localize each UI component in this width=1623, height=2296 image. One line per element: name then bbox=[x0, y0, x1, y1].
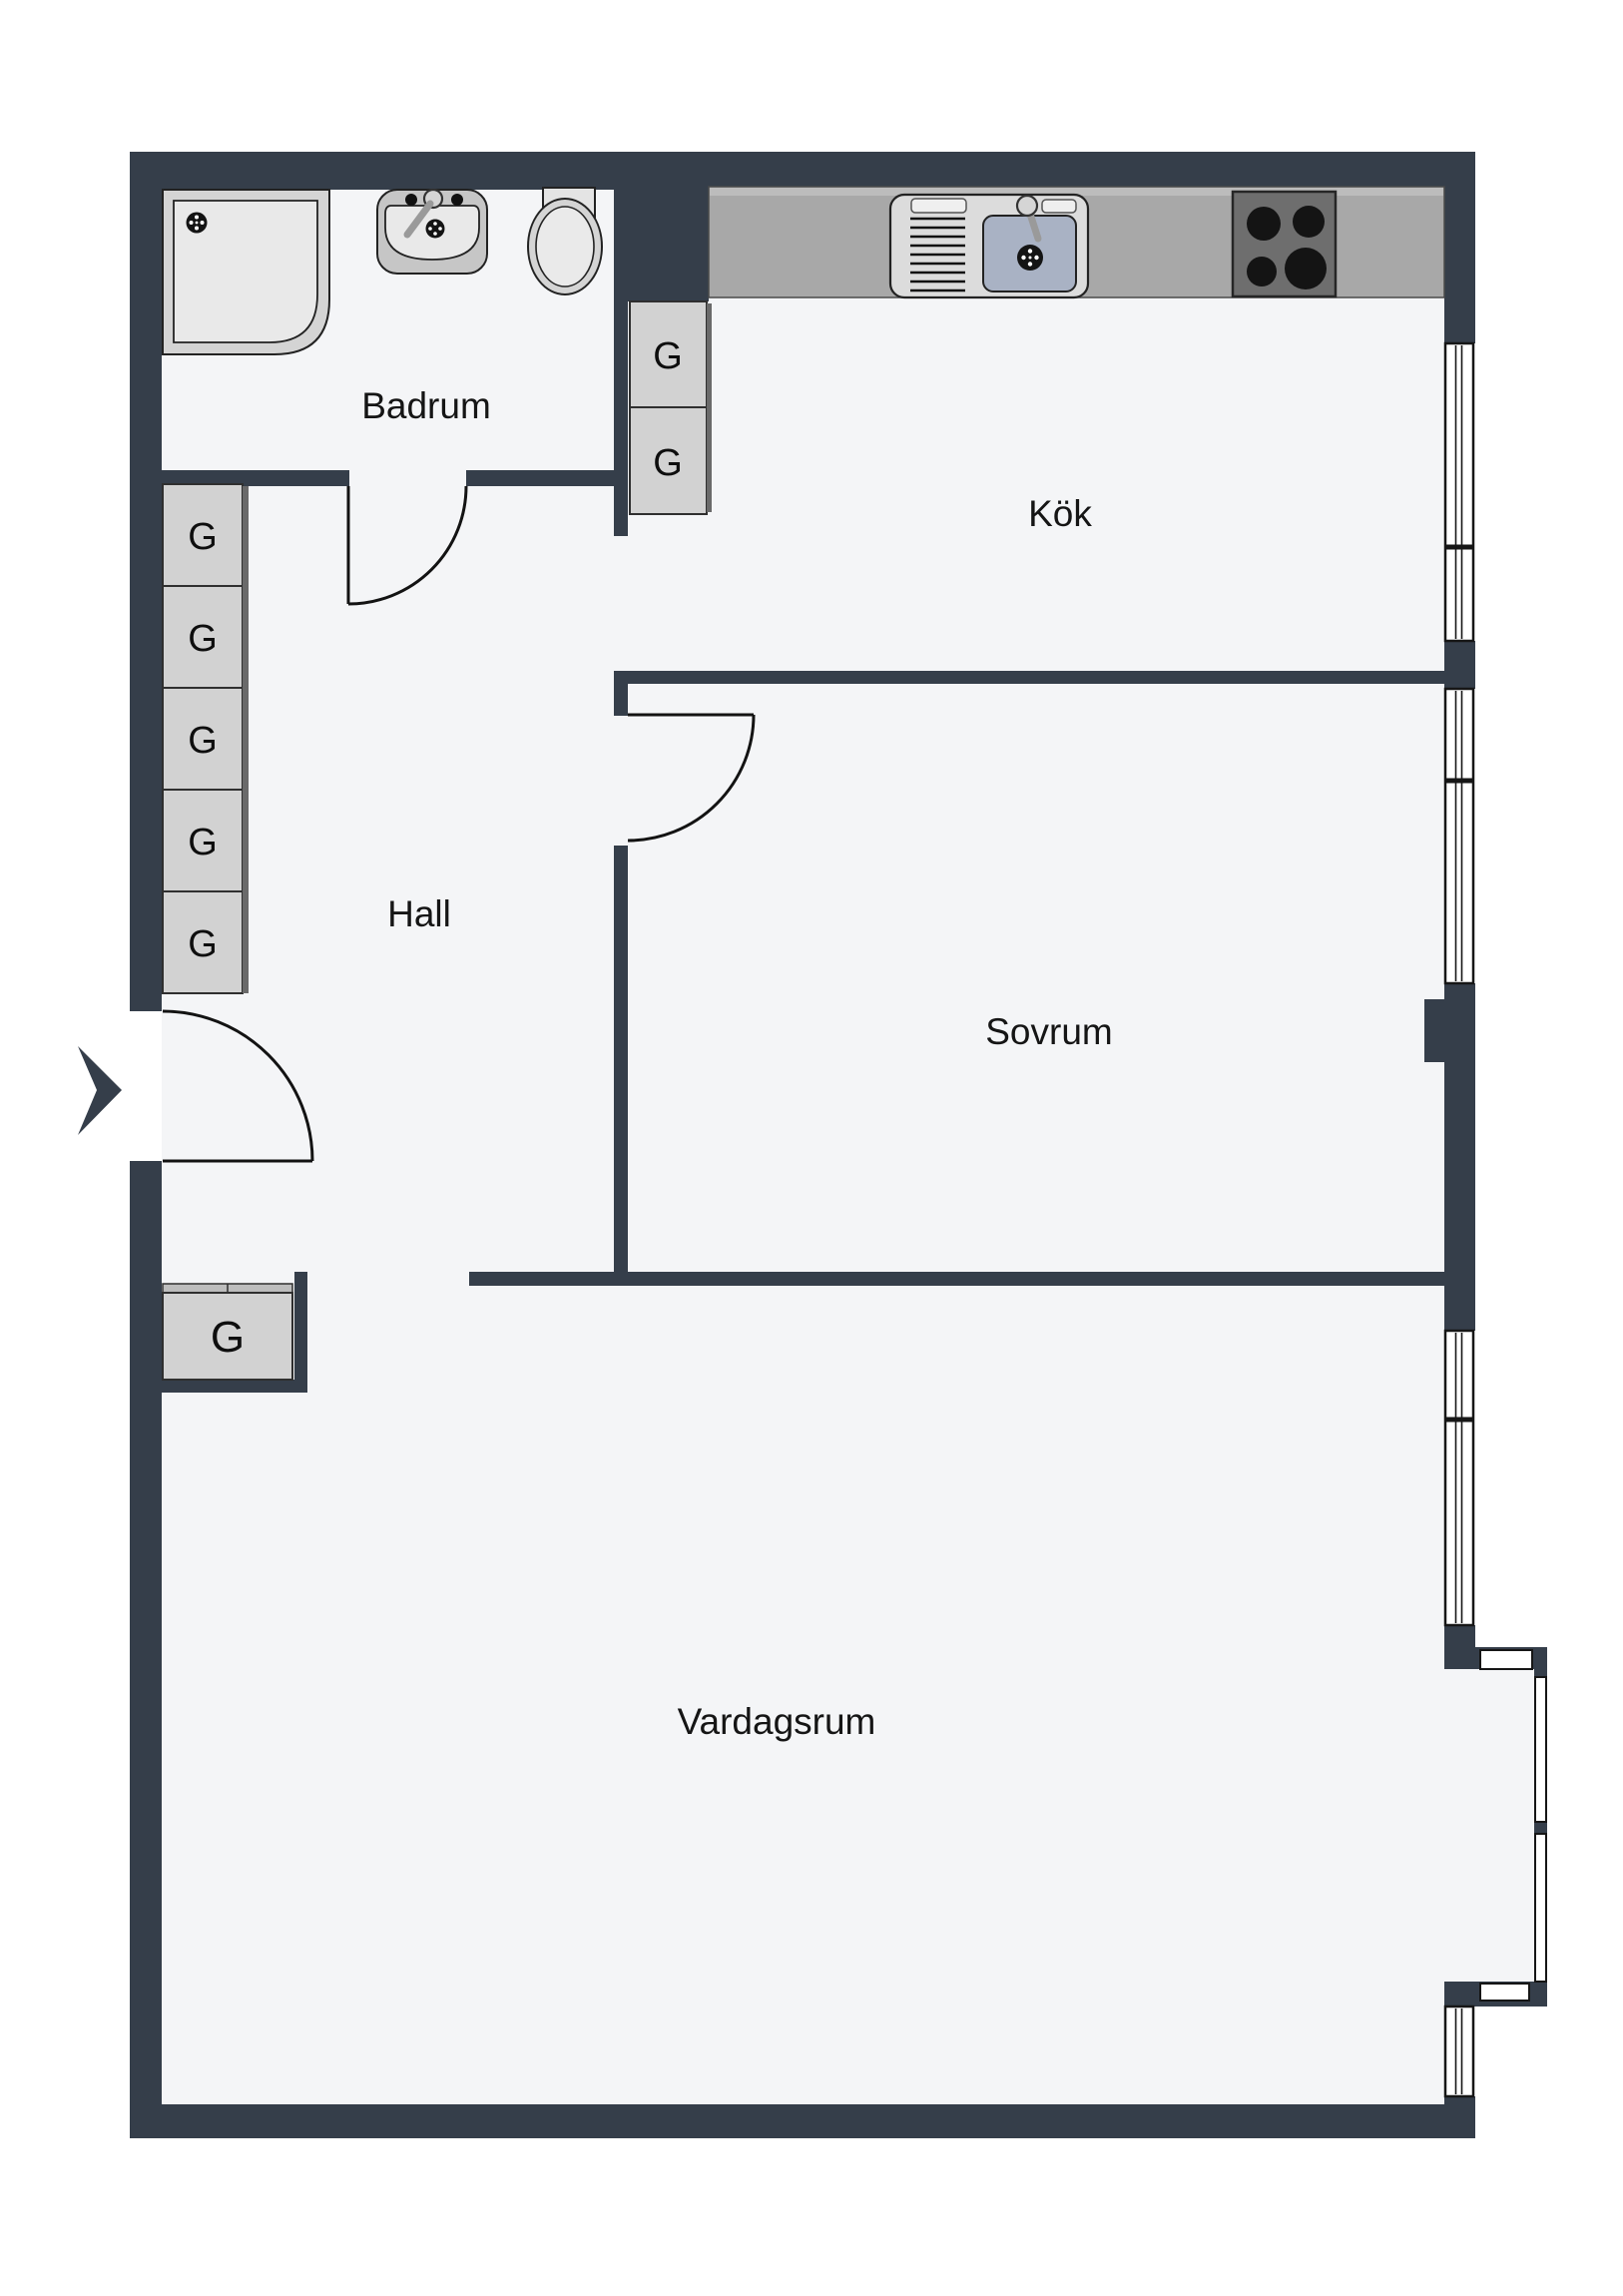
wardrobe-label: G bbox=[188, 618, 218, 660]
wall-right-seg3 bbox=[1444, 983, 1475, 1331]
wall-sovrum-top bbox=[614, 671, 1444, 684]
wall-kitchen-block bbox=[628, 190, 709, 301]
wall-badrum-bottom-right bbox=[466, 470, 628, 486]
bay-window-floor bbox=[1444, 1669, 1534, 1982]
label-vardagsrum: Vardagsrum bbox=[678, 1701, 876, 1742]
floor-plan: G G G G G G G G bbox=[0, 0, 1623, 2296]
apartment-floor bbox=[162, 190, 1444, 2104]
kitchen-fixtures bbox=[709, 187, 1444, 297]
kitchen-sink-icon bbox=[890, 195, 1088, 297]
bathroom-sink-icon bbox=[377, 190, 487, 274]
entry-wardrobe: G bbox=[163, 1284, 292, 1380]
wardrobe-label: G bbox=[188, 516, 218, 558]
window-bay-right-lower bbox=[1535, 1834, 1546, 1982]
label-sovrum: Sovrum bbox=[985, 1011, 1112, 1052]
label-hall: Hall bbox=[387, 893, 451, 934]
window-kitchen bbox=[1445, 343, 1473, 641]
label-kok: Kök bbox=[1028, 493, 1092, 534]
wall-right-seg1 bbox=[1444, 152, 1475, 343]
wall-closet-stub-horizontal bbox=[162, 1380, 307, 1393]
wall-left-lower bbox=[130, 1161, 162, 2138]
wall-sovrum-left-lower bbox=[614, 846, 628, 1272]
wardrobe-label: G bbox=[188, 822, 218, 863]
shower-icon bbox=[163, 190, 329, 354]
window-vardagsrum-upper bbox=[1445, 1331, 1473, 1625]
wardrobe-door-strip bbox=[243, 486, 249, 993]
wardrobe-label: G bbox=[653, 335, 683, 377]
window-sovrum bbox=[1445, 689, 1473, 983]
wall-right-seg4 bbox=[1444, 1625, 1475, 1649]
window-vardagsrum-lower bbox=[1445, 2007, 1473, 2096]
wall-closet-stub-vertical bbox=[294, 1272, 307, 1393]
wall-left-upper bbox=[130, 152, 162, 1011]
kitchen-wardrobes: G G bbox=[630, 301, 712, 514]
wall-right-seg2 bbox=[1444, 641, 1475, 689]
wall-top bbox=[130, 152, 1475, 190]
wardrobe-label: G bbox=[188, 923, 218, 965]
wardrobe-door-strip bbox=[707, 303, 712, 512]
stove-icon bbox=[1233, 192, 1336, 296]
wall-hall-kitchen-divider bbox=[614, 190, 628, 536]
label-badrum: Badrum bbox=[361, 385, 491, 426]
wall-sovrum-bottom bbox=[469, 1272, 1444, 1286]
wardrobe-label: G bbox=[211, 1313, 245, 1362]
entrance-arrow-icon bbox=[78, 1046, 122, 1135]
floor-plan-canvas: G G G G G G G G bbox=[0, 0, 1623, 2296]
floor-areas bbox=[162, 190, 1534, 2104]
hall-wardrobes: G G G G G bbox=[163, 484, 249, 993]
wall-pillar-sovrum bbox=[1424, 999, 1444, 1062]
wall-bottom bbox=[130, 2104, 1475, 2138]
window-bay-right-upper bbox=[1535, 1677, 1546, 1822]
window-bay-top bbox=[1480, 1650, 1532, 1669]
wardrobe-label: G bbox=[653, 442, 683, 484]
wall-right-seg5 bbox=[1444, 2096, 1475, 2138]
wall-sovrum-left-upper bbox=[614, 684, 628, 716]
wardrobe-label: G bbox=[188, 720, 218, 762]
window-bay-bottom bbox=[1480, 1984, 1529, 2001]
